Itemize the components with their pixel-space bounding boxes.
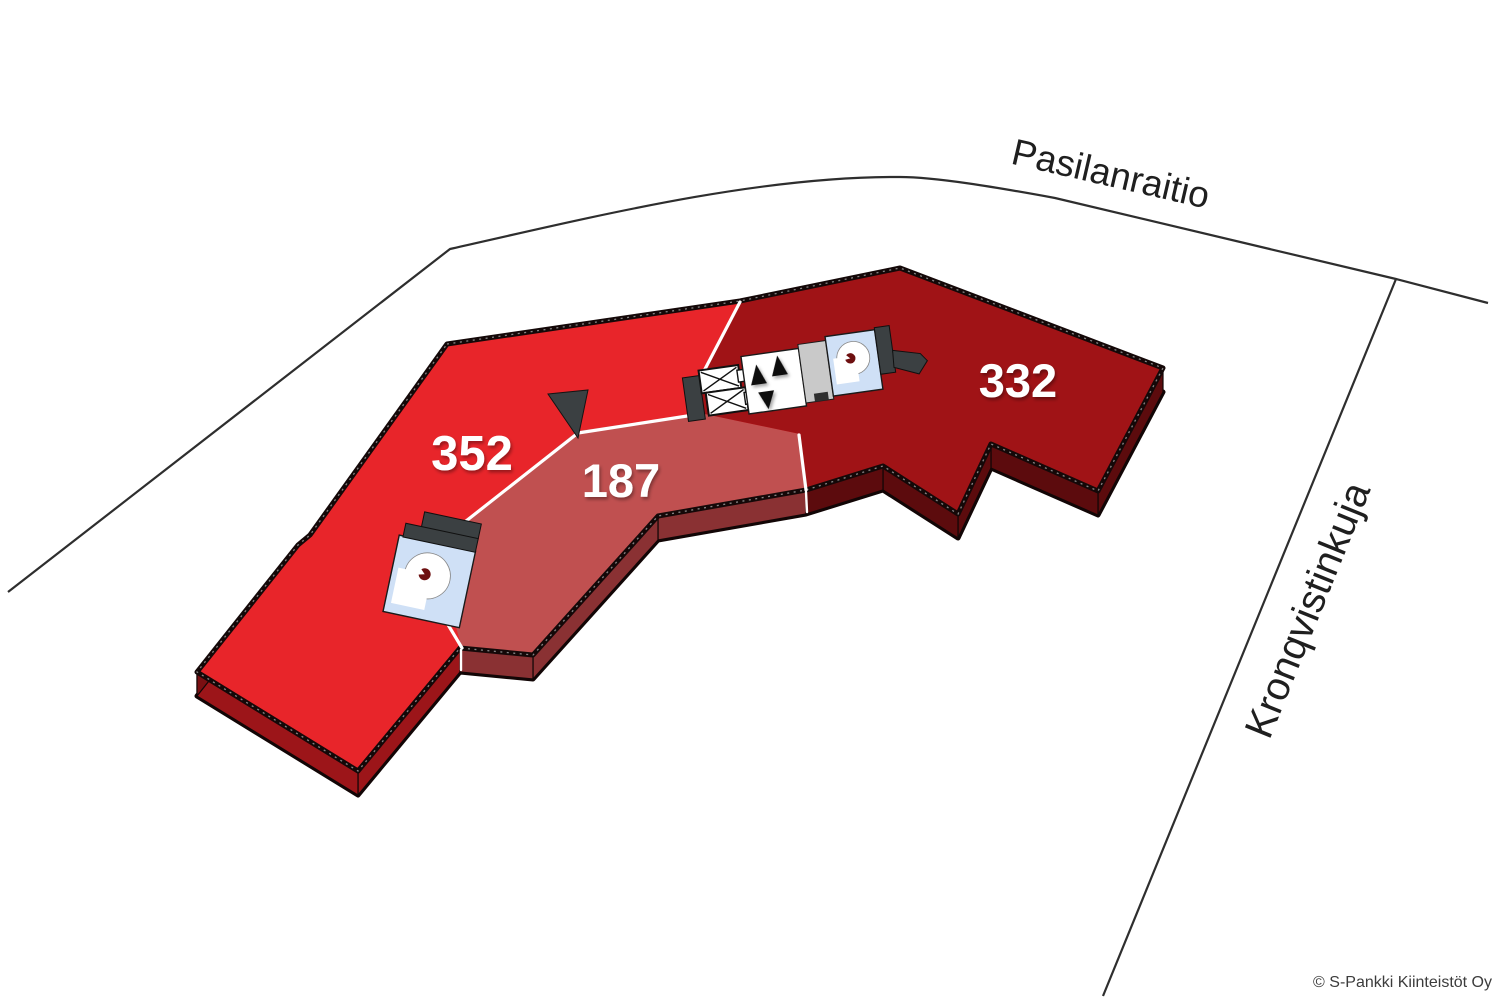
divider-side-tick: [806, 492, 807, 512]
elevator-lobby: [741, 348, 807, 414]
building: 352 187 332: [197, 268, 1163, 795]
area-label-332: 332: [979, 354, 1057, 407]
site-plan-canvas: Pasilanraitio Kronqvistinkuja: [0, 0, 1500, 1000]
copyright-notice: © S-Pankki Kiinteistöt Oy: [1313, 974, 1492, 991]
area-label-352: 352: [431, 427, 513, 481]
area-label-187: 187: [582, 454, 660, 507]
spiral-staircase-icon: [825, 330, 883, 396]
street-name-pasilanraitio: Pasilanraitio: [1008, 131, 1214, 216]
floor-plan-svg: Pasilanraitio Kronqvistinkuja: [0, 0, 1500, 1000]
street-name-kronqvistinkuja: Kronqvistinkuja: [1237, 475, 1380, 744]
